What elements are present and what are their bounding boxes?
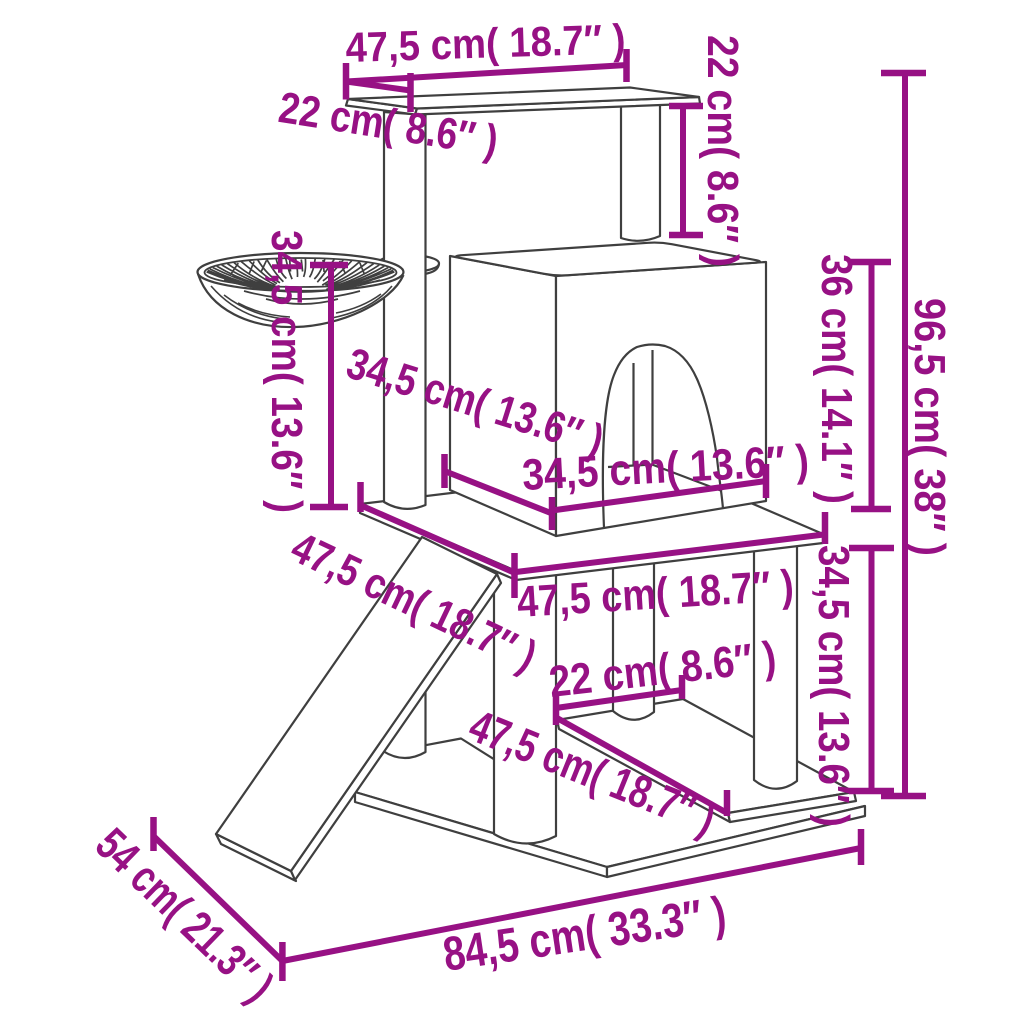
svg-text:34,5 cm( 13.6″ ): 34,5 cm( 13.6″ ) xyxy=(809,545,858,827)
svg-text:47,5 cm( 18.7″ ): 47,5 cm( 18.7″ ) xyxy=(345,15,626,71)
svg-text:36 cm( 14.1″ ): 36 cm( 14.1″ ) xyxy=(812,254,861,504)
svg-text:96,5 cm( 38″ ): 96,5 cm( 38″ ) xyxy=(905,298,954,556)
svg-text:34,5 cm( 13.6″ ): 34,5 cm( 13.6″ ) xyxy=(262,230,311,513)
svg-text:22 cm( 8.6″ ): 22 cm( 8.6″ ) xyxy=(698,35,747,267)
